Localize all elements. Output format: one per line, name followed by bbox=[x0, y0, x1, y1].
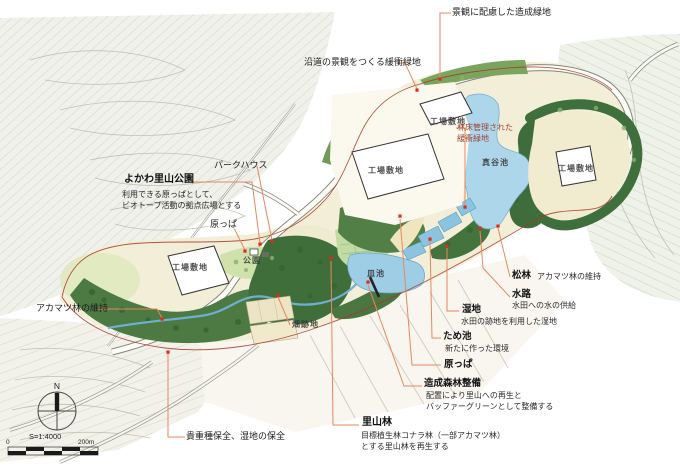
annotation-yokawa-park-desc: 利用できる原っぱとして、ビオトープ活動の拠点広場とする bbox=[122, 190, 241, 211]
annotation-satoyama-title: 里山林 bbox=[362, 418, 392, 428]
annotation-yokawa-park-title: よかわ里山公園 bbox=[124, 175, 194, 185]
annotation-roadside-buffer: 沿道の景観をつくる緩衝緑地 bbox=[304, 58, 421, 67]
annotation-reservoir-desc: 新たに作った環境 bbox=[445, 345, 509, 353]
annotation-satoyama-desc: 目標植生林コナラ林（一部アカマツ林）とする里山林を再生する bbox=[361, 431, 505, 452]
annotation-waterway-desc: 水田への水の供給 bbox=[512, 302, 576, 310]
map-label-hatakeato: 畑跡地 bbox=[292, 319, 319, 330]
map-label-mataniike: 真谷池 bbox=[482, 157, 509, 168]
map-label-koen: 公園 bbox=[243, 255, 261, 266]
annotation-pine-forest-title: 松林 bbox=[512, 271, 531, 281]
annotation-forest-floor-buffer: 林床管理された緩衝緑地 bbox=[457, 123, 513, 144]
map-label-factory-center: 工場敷地 bbox=[368, 165, 404, 176]
annotation-waterway-title: 水路 bbox=[512, 290, 531, 300]
map-label-saraike: 皿池 bbox=[367, 268, 385, 279]
annotation-meadow-left: 原っぱ bbox=[208, 220, 239, 229]
park-structure-2 bbox=[262, 252, 269, 257]
site-plan-page: N S=1:4000 0 200m 工場敷地 工場敷地 工場敷地 工場敷地 真谷… bbox=[0, 0, 680, 468]
scale-zero: 0 bbox=[6, 439, 10, 446]
scale-end: 200m bbox=[78, 439, 94, 446]
annotation-forest-dev-title: 造成森林整備 bbox=[424, 379, 481, 389]
annotation-akamatsu-maintain: アカマツ林の維持 bbox=[36, 304, 108, 313]
north-needle bbox=[55, 393, 59, 411]
annotation-pine-forest-desc: アカマツ林の維持 bbox=[537, 273, 601, 281]
annotation-forest-dev-desc: 配置により里山への再生とバッファーグリーンとして整備する bbox=[426, 391, 553, 412]
map-label-factory-right: 工場敷地 bbox=[558, 163, 594, 174]
annotation-meadow-right: 原っぱ bbox=[444, 360, 473, 370]
north-label: N bbox=[54, 381, 60, 391]
annotation-wetland-desc: 水田の跡地を利用した湿地 bbox=[461, 318, 557, 326]
annotation-parkhouse: パークハウス bbox=[214, 161, 268, 170]
site-plan-map: N S=1:4000 0 200m bbox=[0, 0, 680, 468]
annotation-created-greenery: 景観に配慮した造成緑地 bbox=[452, 8, 551, 17]
scale-ratio: S=1:4000 bbox=[29, 432, 61, 441]
annotation-wetland-title: 湿地 bbox=[462, 305, 481, 315]
annotation-rare-species: 貴重種保全、湿地の保全 bbox=[186, 432, 285, 441]
annotation-reservoir-title: ため池 bbox=[443, 332, 472, 342]
map-label-factory-left: 工場敷地 bbox=[172, 262, 208, 273]
